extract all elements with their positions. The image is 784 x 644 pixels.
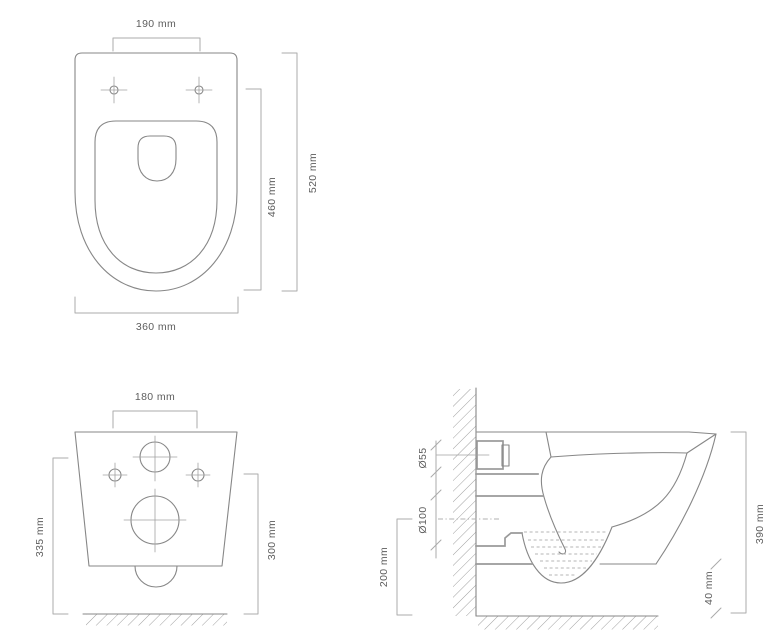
drain-bump xyxy=(135,566,177,587)
flush-channel xyxy=(541,457,565,554)
wall xyxy=(453,388,476,616)
dim-bracket-width: 180 mm xyxy=(113,391,197,428)
mounting-hole-left-back xyxy=(103,463,127,487)
dim-label-40: 40 mm xyxy=(703,571,715,605)
inlet-circle xyxy=(133,436,177,481)
dim-hole-spacing: 190 mm xyxy=(113,18,200,51)
seat-seam xyxy=(551,453,687,457)
dim-label-520: 520 mm xyxy=(307,153,319,193)
dim-pipe-diameters: Ø55 Ø100 xyxy=(417,440,441,558)
back-view: 180 mm 335 mm 300 mm xyxy=(34,391,278,626)
dim-height-right: 300 mm xyxy=(244,474,278,614)
dim-label-180: 180 mm xyxy=(135,391,175,403)
bowl-back-curve xyxy=(612,453,687,527)
toilet-outline-side xyxy=(476,432,716,583)
dim-total-depth: 520 mm xyxy=(282,53,319,291)
mounting-hole-right-back xyxy=(186,463,210,487)
side-view: Ø55 Ø100 200 mm 390 mm 40 mm xyxy=(378,388,766,630)
dim-label-outlet-diameter: Ø100 xyxy=(417,506,429,533)
toilet-outline-back xyxy=(75,432,237,566)
dim-floor-gap: 40 mm xyxy=(703,559,721,618)
wall-hatch xyxy=(453,389,476,616)
toilet-outline-top xyxy=(75,53,237,291)
dim-width: 360 mm xyxy=(75,297,238,333)
dim-total-height: 390 mm xyxy=(731,432,766,613)
dim-label-300: 300 mm xyxy=(266,520,278,560)
seat-front-edge xyxy=(546,432,551,457)
dim-label-inlet-diameter: Ø55 xyxy=(417,447,429,468)
floor xyxy=(476,616,658,630)
top-view: 190 mm 520 mm 460 mm 360 mm xyxy=(75,18,319,333)
bowl-water-area xyxy=(138,136,176,181)
dim-label-360: 360 mm xyxy=(136,321,176,333)
top-edge xyxy=(477,432,716,434)
drawing-canvas: 190 mm 520 mm 460 mm 360 mm xyxy=(0,0,784,644)
ground-line-back xyxy=(83,614,227,626)
outlet-pipe-outline xyxy=(476,533,522,546)
dim-outlet-height: 200 mm xyxy=(378,519,412,615)
dim-label-390: 390 mm xyxy=(754,504,766,544)
seat-ring xyxy=(95,121,217,273)
dim-seat-depth: 460 mm xyxy=(244,89,278,290)
mounting-hole-right xyxy=(186,77,212,103)
floor-hatch xyxy=(478,617,658,630)
ground-hatch-back xyxy=(86,615,227,626)
dim-label-460: 460 mm xyxy=(266,177,278,217)
dim-label-200: 200 mm xyxy=(378,547,390,587)
mounting-hole-left xyxy=(101,77,127,103)
dim-label-190: 190 mm xyxy=(136,18,176,30)
dim-label-335: 335 mm xyxy=(34,517,46,557)
outlet-circle xyxy=(124,489,186,552)
dim-height-left: 335 mm xyxy=(34,458,68,614)
technical-drawing: 190 mm 520 mm 460 mm 360 mm xyxy=(0,0,784,644)
